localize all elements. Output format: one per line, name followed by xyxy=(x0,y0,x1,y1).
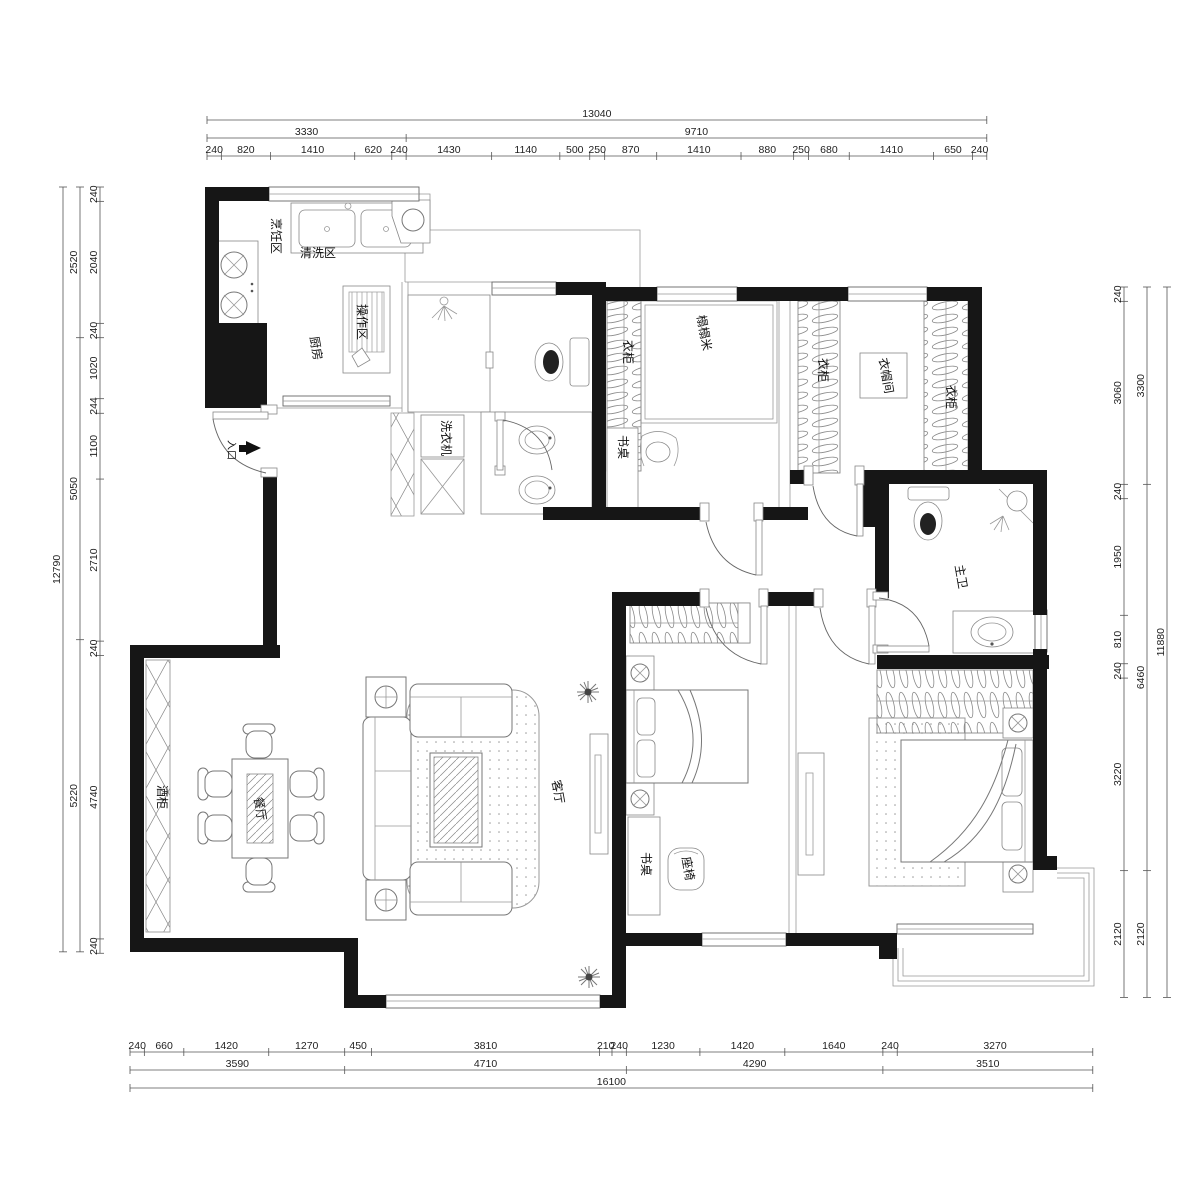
dimension-label: 3510 xyxy=(976,1058,1000,1070)
cloakroom-door xyxy=(804,466,864,536)
dimension-label: 2040 xyxy=(88,251,100,275)
entry-door: 入口 xyxy=(213,405,277,477)
floor-plan-svg: 清洗区 烹饪区 操作区 厨房 洗衣机 xyxy=(0,0,1200,1200)
dimension-label: 240 xyxy=(128,1040,146,1052)
corner-shower xyxy=(990,489,1033,532)
dimension-label: 1100 xyxy=(88,435,100,458)
dimension-label: 3330 xyxy=(295,126,319,138)
tatami-room: 衣柜 榻榻米 书桌 xyxy=(607,301,777,516)
toilet xyxy=(908,487,949,540)
dimension-label: 240 xyxy=(88,639,100,657)
bed xyxy=(626,690,748,783)
dimension-label: 3300 xyxy=(1135,374,1147,398)
dimension-label: 3220 xyxy=(1112,763,1124,787)
dimension-label: 250 xyxy=(792,144,810,156)
dimension-label: 500 xyxy=(566,144,584,156)
dining-chair xyxy=(243,858,275,892)
dining-room: 酒柜 餐厅 xyxy=(146,660,324,932)
label-desk: 书桌 xyxy=(616,435,630,459)
plant-icon xyxy=(578,966,600,988)
label-washing-machine: 洗衣机 xyxy=(439,420,454,456)
label-desk: 书桌 xyxy=(639,852,653,876)
toilet xyxy=(535,338,589,386)
dimension-label: 240 xyxy=(1112,662,1124,680)
dimension-label: 240 xyxy=(610,1040,628,1052)
label-wardrobe: 衣柜 xyxy=(816,358,831,382)
dimension-label: 680 xyxy=(820,144,838,156)
dimension-label: 620 xyxy=(364,144,382,156)
dimension-label: 4290 xyxy=(743,1058,767,1070)
dimension-label: 240 xyxy=(390,144,408,156)
tall-cabinet xyxy=(391,413,414,516)
dimension-label: 1420 xyxy=(215,1040,239,1052)
dimension-label: 240 xyxy=(1112,285,1124,303)
window xyxy=(702,933,786,946)
tv-cabinet xyxy=(590,734,608,854)
dimension-label: 240 xyxy=(205,144,223,156)
dimension-label: 1410 xyxy=(687,144,711,156)
bed xyxy=(901,740,1033,862)
dimension-label: 16100 xyxy=(597,1076,626,1088)
dimension-label: 240 xyxy=(88,185,100,203)
dimension-label: 3060 xyxy=(1112,381,1124,405)
dimension-label: 1950 xyxy=(1112,545,1124,569)
armchair xyxy=(640,431,678,466)
room-label-kitchen: 厨房 xyxy=(307,335,326,361)
dimension-label: 1410 xyxy=(301,144,325,156)
bathroom: 洗衣机 xyxy=(391,295,592,516)
dimension-label: 450 xyxy=(349,1040,367,1052)
dimension-label: 5050 xyxy=(68,477,80,501)
dimension-label: 1270 xyxy=(295,1040,319,1052)
dimension-label: 3810 xyxy=(474,1040,498,1052)
room-label-cook-zone: 烹饪区 xyxy=(269,218,284,254)
dimension-label: 1230 xyxy=(651,1040,675,1052)
window xyxy=(848,287,927,301)
dimension-label: 244 xyxy=(88,397,100,415)
dimension-label: 11880 xyxy=(1155,628,1167,657)
dimension-label: 9710 xyxy=(685,126,709,138)
dimension-label: 1140 xyxy=(514,144,537,156)
dimension-label: 5220 xyxy=(68,784,80,808)
dimension-label: 2120 xyxy=(1112,922,1124,946)
window xyxy=(657,287,737,301)
label-wine-cabinet: 酒柜 xyxy=(155,785,169,809)
dimension-label: 1410 xyxy=(880,144,904,156)
dimension-label: 880 xyxy=(759,144,777,156)
room-label-wash-zone: 清洗区 xyxy=(300,246,336,260)
dimension-label: 6460 xyxy=(1135,666,1147,690)
dimension-label: 4740 xyxy=(88,785,100,809)
label-entrance: 入口 xyxy=(225,440,236,460)
dimension-label: 810 xyxy=(1112,631,1124,649)
dining-chair xyxy=(243,724,275,758)
dimension-label: 240 xyxy=(1112,483,1124,501)
dimension-label: 870 xyxy=(622,144,640,156)
dining-chair xyxy=(198,768,232,800)
window xyxy=(386,995,600,1008)
shower-door-handle xyxy=(486,352,493,368)
sliding-door xyxy=(897,924,1033,934)
tatami-door xyxy=(700,503,763,575)
master-bathroom: 主卫 xyxy=(908,487,1035,653)
floor-plan-canvas: 清洗区 烹饪区 操作区 厨房 洗衣机 xyxy=(0,0,1200,1200)
sofa xyxy=(363,717,411,880)
window xyxy=(269,187,419,201)
dimension-label: 3590 xyxy=(226,1058,250,1070)
sliding-door xyxy=(283,396,390,406)
dimension-label: 240 xyxy=(971,144,989,156)
dimension-label: 13040 xyxy=(582,108,611,120)
cloakroom: 衣柜 衣帽间 衣柜 xyxy=(798,295,968,477)
dimension-label: 240 xyxy=(88,322,100,340)
dimension-label: 250 xyxy=(588,144,606,156)
master-bath-door xyxy=(873,592,929,653)
window xyxy=(492,282,556,295)
dining-chair xyxy=(198,812,232,844)
entry-arrow-icon xyxy=(246,441,261,455)
room-label-tatami: 榻榻米 xyxy=(694,314,714,352)
bedroom-2: 书桌 座椅 xyxy=(626,603,750,915)
dimension-label: 2120 xyxy=(1135,922,1147,946)
room-label-prep-zone: 操作区 xyxy=(355,304,370,340)
tv-cabinet xyxy=(798,753,824,875)
master-bedroom xyxy=(798,670,1033,892)
room-label-master-bath: 主卫 xyxy=(952,564,970,590)
dimension-label: 240 xyxy=(881,1040,899,1052)
living-room: 客厅 xyxy=(363,677,608,988)
room-label-living: 客厅 xyxy=(549,779,568,805)
dimension-label: 660 xyxy=(155,1040,173,1052)
dimension-label: 4710 xyxy=(474,1058,498,1070)
dimension-label: 3270 xyxy=(983,1040,1007,1052)
shower-room xyxy=(408,295,490,412)
dimension-label: 820 xyxy=(237,144,255,156)
dining-chair xyxy=(290,768,324,800)
dimension-label: 1640 xyxy=(822,1040,846,1052)
dimension-label: 240 xyxy=(88,937,100,955)
dimension-label: 1430 xyxy=(437,144,461,156)
dimension-label: 1020 xyxy=(88,356,100,380)
label-wardrobe: 衣柜 xyxy=(944,385,959,409)
dimension-label: 12790 xyxy=(51,555,63,584)
dimension-label: 650 xyxy=(944,144,962,156)
plant-icon xyxy=(577,681,599,703)
window xyxy=(1035,610,1047,652)
dimension-label: 2710 xyxy=(88,548,100,572)
dimension-label: 1420 xyxy=(731,1040,755,1052)
label-wardrobe: 衣柜 xyxy=(621,340,636,364)
dimension-label: 2520 xyxy=(68,251,80,275)
hall-door xyxy=(814,589,876,664)
dining-chair xyxy=(290,812,324,844)
